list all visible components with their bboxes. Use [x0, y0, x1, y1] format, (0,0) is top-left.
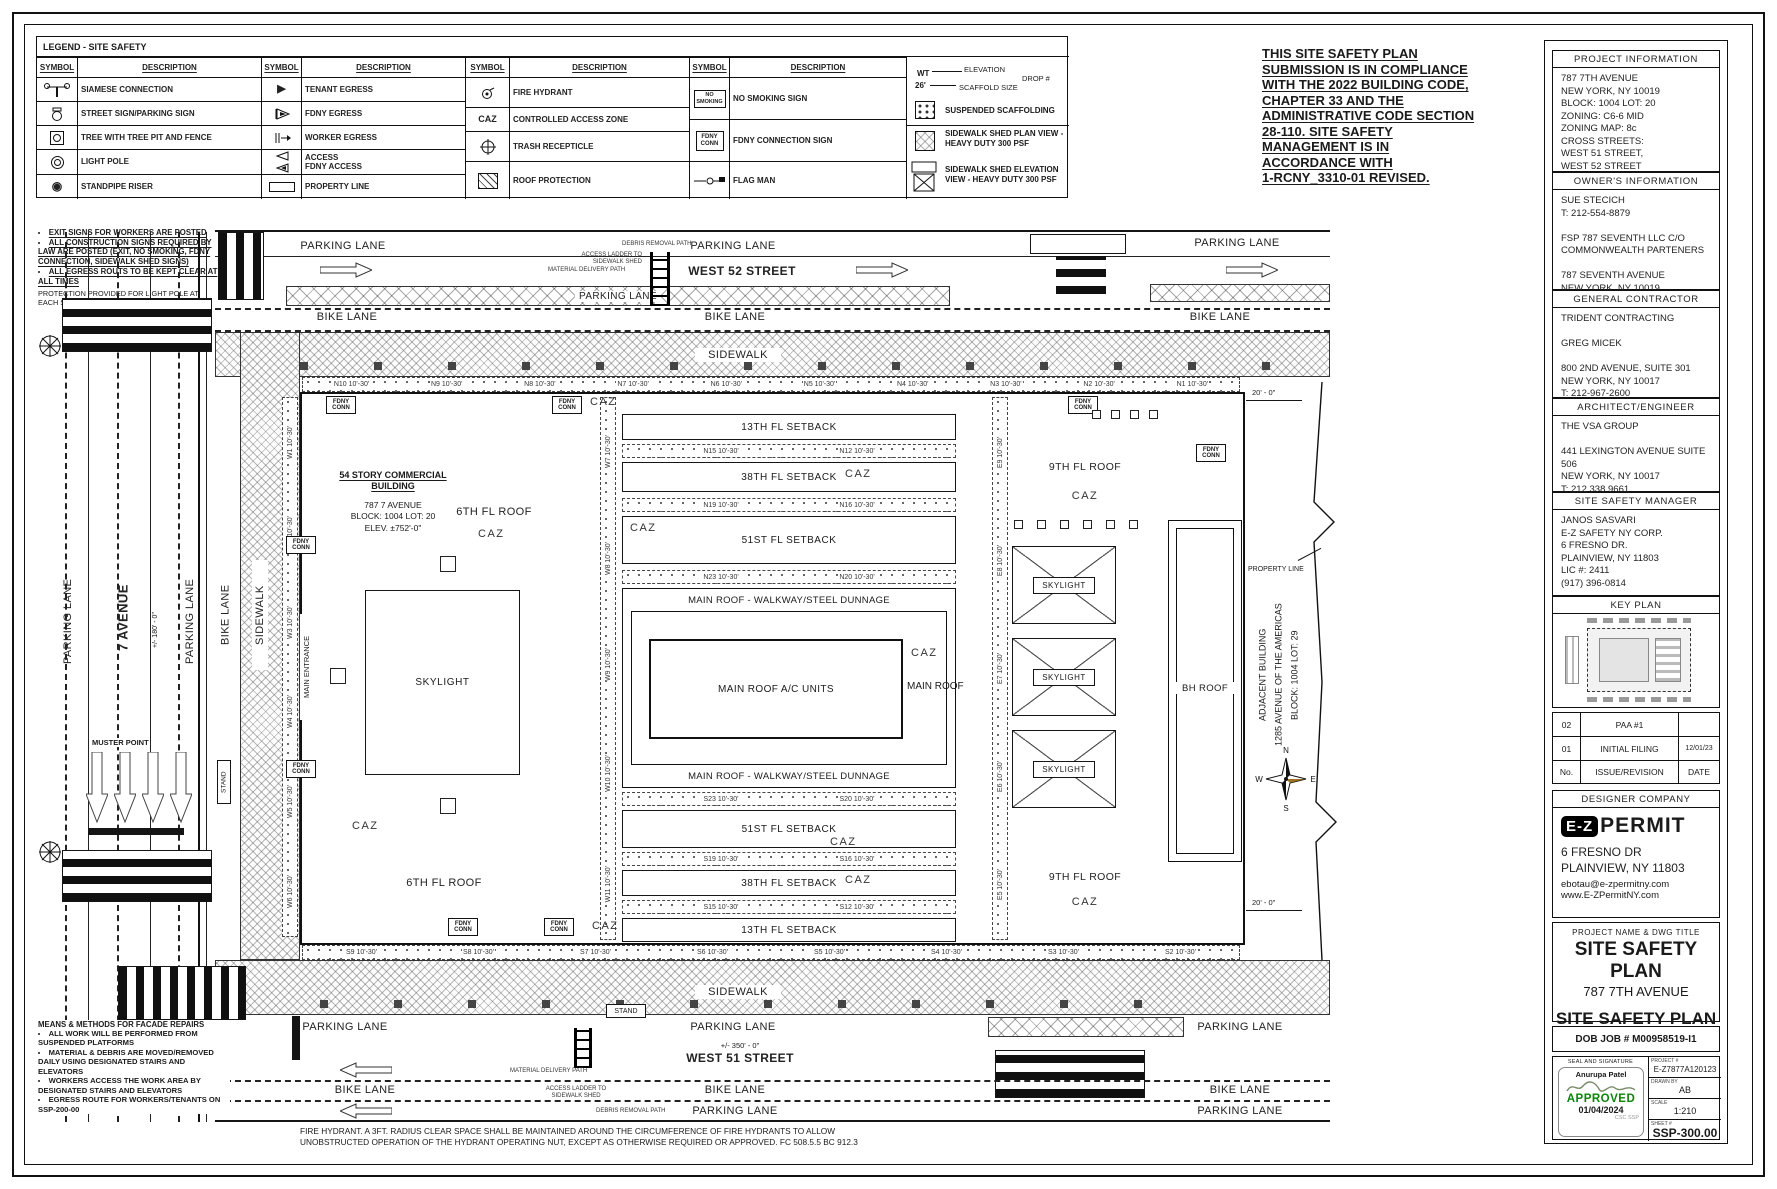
logo-permit: PERMIT — [1600, 814, 1685, 838]
scaffold-drop-label: W8 10'-30' — [604, 542, 613, 575]
compass-rose: N E S W — [1254, 744, 1318, 814]
drop-number-label: DROP # — [1022, 74, 1050, 83]
bike-lane-line — [215, 308, 1330, 310]
muster-arrow — [170, 752, 192, 824]
caz-label: CAZ — [590, 396, 617, 408]
project-number-field: PROJECT # E-Z7877A120123 — [1649, 1057, 1721, 1078]
standpipe-riser-icon: ◉ — [37, 174, 77, 199]
approved-stamp-text: APPROVED — [1559, 1093, 1643, 1105]
debris-removal-path-label: DEBRIS REMOVAL PATH — [596, 1108, 665, 1114]
approval-date: 01/04/2024 — [1559, 1105, 1643, 1115]
legend-desc: FDNY EGRESS — [301, 101, 465, 125]
roof-protection-icon — [465, 161, 509, 199]
trash-recepticle-icon — [465, 131, 509, 161]
west-51-street-label: WEST 51 STREET — [688, 1051, 792, 1065]
leader-line — [932, 71, 962, 72]
general-contractor-body: TRIDENT CONTRACTING GREG MICEK 800 2ND A… — [1552, 308, 1720, 398]
scaffold-drop-strip-south: S9 10'-30'S8 10'-30'S7 10'-30'S6 10'-30'… — [302, 945, 1240, 960]
fdny-connection-sign-icon: FDNY CONN — [689, 119, 729, 161]
leader-line — [930, 85, 956, 86]
access-ladder-icon — [650, 252, 670, 306]
scaffold-drop-label: W10 10'-30' — [604, 755, 613, 792]
revision-desc: INITIAL FILING — [1581, 737, 1679, 760]
crosswalk — [62, 298, 212, 352]
setback-38-bar: 38TH FL SETBACK — [622, 870, 956, 896]
scaffold-drop-label: N7 10'-30' — [616, 381, 649, 388]
site-safety-manager-header: SITE SAFETY MANAGER — [1552, 492, 1720, 510]
scaffold-drop-label: S3 10'-30' — [1047, 949, 1080, 956]
scaffold-drop-label: W6 10'-30' — [286, 875, 295, 908]
scaffold-size-label: SCAFFOLD SIZE — [959, 83, 1018, 92]
csc-ssp-label: CSC SSP — [1559, 1115, 1643, 1121]
svg-text:S: S — [1283, 804, 1288, 813]
legend-header-symbol: SYMBOL — [465, 57, 509, 77]
scaffold-drop-label: S9 10'-30' — [345, 949, 378, 956]
scaffold-drop-label: N8 10'-30' — [523, 381, 556, 388]
stamp-name: Anurupa Patel — [1559, 1070, 1643, 1079]
revision-no: 02 — [1553, 713, 1581, 736]
no-smoking-sign-icon: NO SMOKING — [689, 77, 729, 119]
scaffold-drop-label: N1 10'-30' — [1176, 381, 1209, 388]
parking-lane-label: PARKING LANE — [1192, 236, 1282, 249]
dimension-20ft: 20' - 0" — [1252, 388, 1275, 397]
revision-date-header: DATE — [1679, 761, 1719, 783]
traffic-arrow-east — [320, 262, 372, 278]
scaffold-drop-id: WT — [917, 69, 929, 78]
parking-lane-label: PARKING LANE — [298, 239, 388, 252]
street-line — [215, 256, 1330, 257]
caz-label: CAZ — [845, 468, 872, 480]
flag-man-icon — [689, 161, 729, 199]
scaffold-drop-label: N10 10'-30' — [333, 381, 370, 388]
skylight: SKYLIGHT — [1012, 546, 1116, 624]
field-label: DRAWN BY — [1651, 1079, 1678, 1085]
note-item: EGRESS ROUTE FOR WORKERS/TENANTS ON SSP-… — [38, 1095, 230, 1114]
fdny-conn-sign: FDNY CONN — [552, 396, 582, 414]
material-delivery-path-label: MATERIAL DELIVERY PATH — [510, 1068, 587, 1074]
scaffold-drop-label: S6 10'-30' — [696, 949, 729, 956]
traffic-arrow-west — [340, 1062, 392, 1078]
parking-lane-label: PARKING LANE — [688, 1020, 778, 1033]
sidewalk-label: SIDEWALK — [695, 348, 781, 362]
legend-header-desc: DESCRIPTION — [729, 57, 906, 77]
legend-desc: SIDEWALK SHED PLAN VIEW - HEAVY DUTY 300… — [945, 129, 1065, 148]
street-sign-icon — [37, 101, 77, 125]
project-info-header: PROJECT INFORMATION — [1552, 50, 1720, 68]
divider — [906, 125, 1069, 126]
light-pole-icon — [38, 334, 62, 358]
shed-elevation-icon — [911, 161, 937, 193]
site-safety-manager-body: JANOS SASVARI E-Z SAFETY NY CORP. 6 FRES… — [1552, 510, 1720, 596]
legend-header-desc: DESCRIPTION — [301, 57, 465, 77]
shed-plan-icon — [915, 131, 935, 151]
access-ladder-label: ACCESS LADDER TO SIDEWALK SHED — [576, 252, 642, 265]
scaffold-drop-label: W4 10'-30' — [286, 695, 295, 728]
caz-label: CAZ — [830, 836, 857, 848]
bike-lane-line — [215, 1080, 1330, 1082]
compliance-statement: THIS SITE SAFETY PLAN SUBMISSION IS IN C… — [1262, 46, 1542, 186]
caz-label: CAZ — [845, 874, 872, 886]
scaffold-strip: N19 10'-30'N16 10'-30' — [622, 498, 956, 512]
scaffold-drop-label: S5 10'-30' — [813, 949, 846, 956]
revision-header-row: No. ISSUE/REVISION DATE — [1553, 761, 1719, 783]
legend-desc: CONTROLLED ACCESS ZONE — [509, 107, 689, 131]
scaffold-drop-strip-inner-west: W7 10'-30'W8 10'-30'W9 10'-30'W10 10'-30… — [600, 397, 616, 940]
bh-roof-label: BH ROOF — [1170, 682, 1240, 694]
sidewalk-label: SIDEWALK — [252, 560, 268, 670]
setback-51-bar: 51ST FL SETBACK — [622, 516, 956, 564]
skylight: SKYLIGHT — [365, 590, 520, 775]
traffic-arrow-east — [1226, 262, 1278, 278]
note-item: MATERIAL & DEBRIS ARE MOVED/REMOVED DAIL… — [38, 1048, 230, 1076]
dimension-350ft: +/- 350' - 0" — [698, 1040, 782, 1050]
caz-label: CAZ — [1062, 896, 1108, 908]
scaffold-drop-label: S12 10'-30' — [839, 904, 876, 911]
seal-and-fields: SEAL AND SIGNATURE Anurupa Patel APPROVE… — [1552, 1056, 1720, 1140]
debris-removal-path-label: DEBRIS REMOVAL PATH — [622, 241, 691, 247]
stand-box: STAND — [606, 1004, 646, 1018]
main-roof-walkway-label: MAIN ROOF - WALKWAY/STEEL DUNNAGE — [623, 592, 955, 608]
main-roof-block: MAIN ROOF - WALKWAY/STEEL DUNNAGE MAIN R… — [622, 588, 956, 788]
roof-column — [440, 556, 456, 572]
scaffold-drop-label: S19 10'-30' — [703, 856, 740, 863]
roof-marker-row — [1014, 520, 1138, 529]
legend-desc: SUSPENDED SCAFFOLDING — [945, 106, 1055, 115]
scaffold-drop-label: N20 10'-30' — [838, 574, 875, 581]
scaffold-size-value: 26' — [915, 81, 926, 90]
scaffold-drop-label: W5 10'-30' — [286, 785, 295, 818]
crosswalk — [1056, 256, 1106, 294]
designer-email: ebotau@e-zpermitny.com — [1561, 879, 1711, 890]
parking-lane-label: PARKING LANE — [1195, 1104, 1285, 1117]
key-plan-header: KEY PLAN — [1552, 596, 1720, 614]
seal-label: SEAL AND SIGNATURE — [1553, 1057, 1648, 1066]
legend-desc: FLAG MAN — [729, 161, 906, 199]
muster-arrow — [142, 752, 164, 824]
material-delivery-path-label: MATERIAL DELIVERY PATH — [548, 267, 625, 273]
building-name: 54 STORY COMMERCIAL BUILDING — [318, 468, 468, 494]
scaffold-drop-label: N16 10'-30' — [838, 502, 875, 509]
field-label: PROJECT # — [1651, 1058, 1678, 1064]
setback-13-bar: 13TH FL SETBACK — [622, 414, 956, 440]
revision-row: 02 PAA #1 — [1553, 713, 1719, 737]
light-pole-icon — [38, 840, 62, 864]
main-entrance-label: MAIN ENTRANCE — [300, 614, 313, 720]
scaffold-drop-label: W9 10'-30' — [604, 648, 613, 681]
caz-label: CAZ — [478, 528, 505, 540]
fdny-conn-sign: FDNY CONN — [448, 918, 478, 936]
scaffold-drop-label: S2 10'-30' — [1164, 949, 1197, 956]
parking-lane-label: PARKING LANE — [300, 1020, 390, 1033]
legend-desc: STANDPIPE RISER — [77, 174, 261, 199]
scaffold-strip: S15 10'-30'S12 10'-30' — [622, 900, 956, 914]
roof-9th-label: 9TH FL ROOF — [1018, 460, 1152, 473]
crosswalk — [62, 850, 212, 902]
sidewalk-label: SIDEWALK — [695, 985, 781, 999]
dob-job-number: DOB JOB # M00958519-I1 — [1552, 1026, 1720, 1052]
legend-header-symbol: SYMBOL — [689, 57, 729, 77]
scaffold-drop-strip-west: W1 10'-30'W2 10'-30'W3 10'-30'W4 10'-30'… — [282, 397, 298, 937]
fire-hydrant-icon — [465, 77, 509, 107]
barrier-bar — [292, 1016, 300, 1060]
parking-lane-label: PARKING LANE — [688, 239, 778, 252]
fdny-conn-sign: FDNY CONN — [286, 760, 316, 778]
approval-stamp: Anurupa Patel APPROVED 01/04/2024 CSC SS… — [1558, 1067, 1644, 1137]
scale-field: SCALE 1:210 — [1649, 1099, 1721, 1120]
muster-arrow — [114, 752, 136, 824]
setback-51-bar: 51ST FL SETBACK — [622, 810, 956, 848]
bike-lane-label: BIKE LANE — [1205, 1084, 1275, 1096]
key-plan-thumbnail — [1552, 614, 1720, 708]
worker-egress-icon — [261, 125, 301, 149]
bike-lane-line — [215, 1100, 1330, 1102]
notes-bottom-title: MEANS & METHODS FOR FACADE REPAIRS — [38, 1020, 230, 1029]
scaffold-drop-label: E6 10'-30' — [996, 761, 1005, 792]
scaffold-drop-label: N12 10'-30' — [838, 448, 875, 455]
scaffold-drop-label: W11 10'-30' — [604, 866, 613, 902]
caz-label: CAZ — [592, 920, 619, 932]
access-ladder-icon — [574, 1028, 592, 1068]
sidewalk-shed-elevation-strip — [1150, 284, 1330, 302]
caz-label: CAZ — [352, 820, 379, 832]
property-line-icon — [261, 174, 301, 199]
scaffold-drop-label: N23 10'-30' — [702, 574, 739, 581]
designer-company-header: DESIGNER COMPANY — [1552, 790, 1720, 808]
caz-label: CAZ — [630, 522, 657, 534]
owner-info-body: SUE STECICH T: 212-554-8879 FSP 787 SEVE… — [1552, 190, 1720, 290]
access-ladder-label: ACCESS LADDER TO SIDEWALK SHED — [545, 1086, 607, 1099]
roof-column — [330, 668, 346, 684]
legend-desc: PROPERTY LINE — [301, 174, 465, 199]
roof-column — [440, 798, 456, 814]
scaffold-drop-label: E9 10'-30' — [996, 437, 1005, 468]
svg-text:N: N — [1283, 746, 1289, 755]
designer-website: www.E-ZPermitNY.com — [1561, 890, 1711, 901]
scaffold-drop-label: N3 10'-30' — [989, 381, 1022, 388]
bike-lane-label: BIKE LANE — [312, 311, 382, 323]
scaffold-drop-label: S23 10'-30' — [703, 796, 740, 803]
revision-no-header: No. — [1553, 761, 1581, 783]
7-avenue-label: 7 AVENUE — [113, 548, 133, 688]
drawn-by-field: DRAWN BY AB — [1649, 1078, 1721, 1099]
skylight: SKYLIGHT — [1012, 730, 1116, 808]
svg-text:W: W — [1255, 775, 1263, 784]
legend-header-symbol: SYMBOL — [261, 57, 301, 77]
drawing-subtitle: 787 7TH AVENUE — [1553, 984, 1719, 999]
parking-lane-label: PARKING LANE — [690, 1104, 780, 1117]
muster-point-label: MUSTER POINT — [92, 738, 149, 747]
light-pole-icon — [37, 149, 77, 174]
scaffold-drop-label: N15 10'-30' — [702, 448, 739, 455]
legend-desc: SIDEWALK SHED ELEVATION VIEW - HEAVY DUT… — [945, 165, 1065, 184]
traffic-arrow-east — [856, 262, 908, 278]
roof-6th-label: 6TH FL ROOF — [438, 505, 550, 519]
revision-table: 02 PAA #1 01 INITIAL FILING 12/01/23 No.… — [1552, 712, 1720, 784]
scaffold-strip: S23 10'-30'S20 10'-30' — [622, 792, 956, 806]
owner-info-header: OWNER'S INFORMATION — [1552, 172, 1720, 190]
scaffold-strip: N15 10'-30'N12 10'-30' — [622, 444, 956, 458]
siamese-connection-icon — [37, 77, 77, 101]
sidewalk-shed-elevation-strip — [988, 1017, 1184, 1037]
scaffold-drop-label: S7 10'-30' — [579, 949, 612, 956]
architect-engineer-header: ARCHITECT/ENGINEER — [1552, 398, 1720, 416]
fdny-conn-sign: FDNY CONN — [286, 536, 316, 554]
main-roof-label: MAIN ROOF — [907, 681, 964, 692]
seal-area: SEAL AND SIGNATURE Anurupa Patel APPROVE… — [1553, 1057, 1649, 1141]
barrier-bar — [88, 828, 184, 835]
scaffold-drop-label: N19 10'-30' — [702, 502, 739, 509]
scaffold-drop-label: E8 10'-30' — [996, 545, 1005, 576]
roof-6th-label: 6TH FL ROOF — [388, 876, 500, 890]
legend-desc: FDNY CONNECTION SIGN — [729, 119, 906, 161]
lane-line — [88, 232, 89, 1122]
bike-lane-label: BIKE LANE — [1185, 311, 1255, 323]
notes-bottom: MEANS & METHODS FOR FACADE REPAIRS ALL W… — [38, 1020, 230, 1114]
revision-no: 01 — [1553, 737, 1581, 760]
parking-lane-label: PARKING LANE — [1195, 1020, 1285, 1033]
roof-marker-row — [1092, 410, 1158, 419]
general-contractor-header: GENERAL CONTRACTOR — [1552, 290, 1720, 308]
scaffold-drop-label: W1 10'-30' — [286, 426, 295, 459]
scaffold-drop-label: N5 10'-30' — [803, 381, 836, 388]
note-item: ALL WORK WILL BE PERFORMED FROM SUSPENDE… — [38, 1029, 230, 1048]
legend-desc: SIAMESE CONNECTION — [77, 77, 261, 101]
access-icons — [261, 149, 301, 174]
legend-title: LEGEND - SITE SAFETY — [37, 37, 1069, 57]
tree-pit-icon — [37, 125, 77, 149]
scaffold-drop-strip-inner-east: E9 10'-30'E8 10'-30'E7 10'-30'E6 10'-30'… — [992, 397, 1008, 940]
sidewalk-shed-elevation-strip: PARKING LANE — [286, 286, 950, 306]
legend-panel: LEGEND - SITE SAFETY SYMBOL DESCRIPTION … — [36, 36, 1068, 198]
crosswalk — [218, 232, 264, 300]
caz-symbol: CAZ — [465, 107, 509, 131]
legend-desc: TREE WITH TREE PIT AND FENCE — [77, 125, 261, 149]
bike-lane-label: BIKE LANE — [218, 560, 233, 670]
legend-desc: FIRE HYDRANT — [509, 77, 689, 107]
designer-address: 6 FRESNO DR PLAINVIEW, NY 11803 — [1561, 844, 1711, 876]
revision-row: 01 INITIAL FILING 12/01/23 — [1553, 737, 1719, 761]
scaffold-drop-label: N4 10'-30' — [896, 381, 929, 388]
scaffold-drop-label: S16 10'-30' — [839, 856, 876, 863]
legend-desc: LIGHT POLE — [77, 149, 261, 174]
site-safety-plan-sheet: LEGEND - SITE SAFETY SYMBOL DESCRIPTION … — [0, 0, 1777, 1189]
skylight: SKYLIGHT — [1012, 638, 1116, 716]
scaffold-drop-label: N6 10'-30' — [710, 381, 743, 388]
dimension-20ft: 20' - 0" — [1252, 898, 1275, 907]
svg-text:E: E — [1310, 775, 1315, 784]
tree-marker-row — [300, 362, 1280, 370]
stand-box: STAND — [217, 760, 231, 804]
bike-lane-label: BIKE LANE — [700, 1084, 770, 1096]
parking-lane-label: PARKING LANE — [182, 556, 198, 686]
bike-lane-label: BIKE LANE — [700, 311, 770, 323]
fdny-egress-icon — [261, 101, 301, 125]
scaffold-strip: S19 10'-30'S16 10'-30' — [622, 852, 956, 866]
fdny-conn-sign: FDNY CONN — [1196, 444, 1226, 462]
revision-date — [1679, 713, 1719, 736]
legend-desc: TENANT EGRESS — [301, 77, 465, 101]
roof-9th-label: 9TH FL ROOF — [1018, 870, 1152, 883]
dimension-180ft: +/- 180' - 0" — [150, 585, 161, 675]
bike-lane-label: BIKE LANE — [330, 1084, 400, 1096]
main-roof-walkway-label: MAIN ROOF - WALKWAY/STEEL DUNNAGE — [623, 768, 955, 784]
field-label: SCALE — [1651, 1100, 1667, 1106]
scaffold-strip: N23 10'-30'N20 10'-30' — [622, 570, 956, 584]
setback-13-bar: 13TH FL SETBACK — [622, 918, 956, 942]
revision-date: 12/01/23 — [1679, 737, 1719, 760]
crosswalk — [995, 1050, 1145, 1098]
property-line-zigzag — [1308, 382, 1342, 960]
crosswalk — [118, 966, 246, 1020]
street-line — [215, 1120, 1330, 1122]
field-label: SHEET # — [1651, 1121, 1672, 1127]
sheet-number-field: SHEET # SSP-300.00 — [1649, 1120, 1721, 1141]
traffic-arrow-west — [340, 1103, 392, 1119]
scaffold-drop-label: S8 10'-30' — [462, 949, 495, 956]
scaffold-drop-label: S20 10'-30' — [839, 796, 876, 803]
legend-desc: STREET SIGN/PARKING SIGN — [77, 101, 261, 125]
scaffold-drop-label: N9 10'-30' — [430, 381, 463, 388]
architect-engineer-body: THE VSA GROUP 441 LEXINGTON AVENUE SUITE… — [1552, 416, 1720, 492]
fdny-conn-sign: FDNY CONN — [326, 396, 356, 414]
scaffold-drop-label: E7 10'-30' — [996, 653, 1005, 684]
street-line — [215, 230, 1330, 232]
fire-hydrant-note: FIRE HYDRANT. A 3FT. RADIUS CLEAR SPACE … — [300, 1126, 1180, 1148]
revision-desc-header: ISSUE/REVISION — [1581, 761, 1679, 783]
bus-shelter-outline — [1030, 234, 1126, 254]
parking-lane-label: PARKING LANE — [575, 291, 661, 302]
scaffold-drop-label: W3 10'-30' — [286, 606, 295, 639]
scaffold-drop-label: N2 10'-30' — [1082, 381, 1115, 388]
revision-desc: PAA #1 — [1581, 713, 1679, 736]
designer-company-body: E-Z PERMIT 6 FRESNO DR PLAINVIEW, NY 118… — [1552, 808, 1720, 918]
logo-ez: E-Z — [1561, 816, 1598, 837]
scaffold-drop-strip-north: N10 10'-30'N9 10'-30'N8 10'-30'N7 10'-30… — [302, 377, 1240, 392]
elevation-label: ELEVATION — [964, 65, 1005, 74]
ezpermit-logo: E-Z PERMIT — [1561, 814, 1711, 838]
title-block-header: PROJECT NAME & DWG TITLE — [1553, 928, 1719, 937]
scaffold-drop-label: W7 10'-30' — [604, 435, 613, 468]
field-rows: PROJECT # E-Z7877A120123 DRAWN BY AB SCA… — [1649, 1057, 1721, 1141]
muster-arrow — [86, 752, 108, 824]
project-info-body: 787 7TH AVENUE NEW YORK, NY 10019 BLOCK:… — [1552, 68, 1720, 172]
main-roof-ac-units: MAIN ROOF A/C UNITS — [649, 639, 903, 739]
legend-desc: ROOF PROTECTION — [509, 161, 689, 199]
dimension-line — [1246, 910, 1302, 911]
legend-desc: NO SMOKING SIGN — [729, 77, 906, 119]
caz-label: CAZ — [911, 647, 938, 659]
scaffold-drop-label: S4 10'-30' — [930, 949, 963, 956]
note-item: WORKERS ACCESS THE WORK AREA BY DESIGNAT… — [38, 1076, 230, 1095]
legend-desc: ACCESS FDNY ACCESS — [301, 149, 465, 174]
fdny-conn-sign: FDNY CONN — [544, 918, 574, 936]
title-block: PROJECT NAME & DWG TITLE SITE SAFETY PLA… — [1552, 922, 1720, 1022]
scaffold-drop-label: S15 10'-30' — [703, 904, 740, 911]
tree-marker-row — [320, 1000, 1200, 1008]
legend-desc: WORKER EGRESS — [301, 125, 465, 149]
west-52-street-label: WEST 52 STREET — [690, 264, 794, 278]
caz-label: CAZ — [1062, 490, 1108, 502]
legend-header-desc: DESCRIPTION — [509, 57, 689, 77]
setback-38-bar: 38TH FL SETBACK — [622, 462, 956, 492]
legend-header-desc: DESCRIPTION — [77, 57, 261, 77]
drawing-title: SITE SAFETY PLAN — [1553, 939, 1719, 983]
legend-desc: TRASH RECEPTICLE — [509, 131, 689, 161]
dimension-line — [1246, 400, 1302, 401]
parking-lane-label: PARKING LANE — [60, 556, 76, 686]
scaffold-drop-label: E5 10'-30' — [996, 869, 1005, 900]
tenant-egress-icon: ▶ — [261, 77, 301, 101]
